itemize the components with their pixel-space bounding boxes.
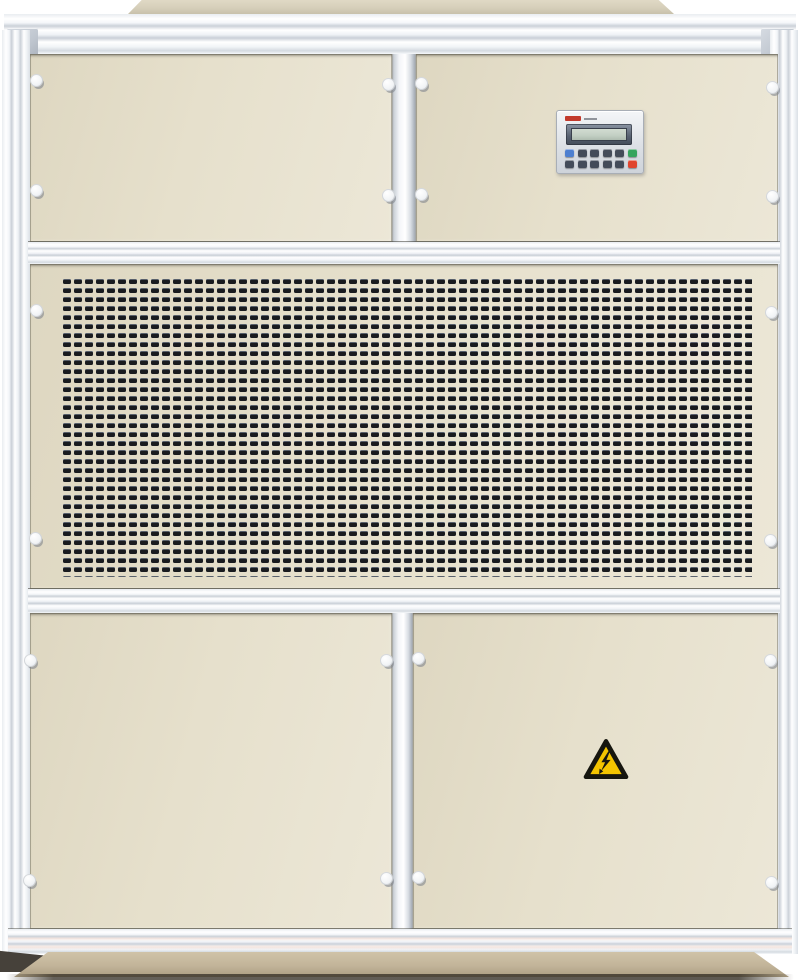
keypad-button-dark [590,160,599,168]
electrical-hazard-icon [583,736,629,782]
panel-latch [766,81,779,94]
access-door-bottom-left [30,613,392,929]
panel-latch [765,876,778,889]
keypad-button-dark [615,160,624,168]
panel-latch [415,188,428,201]
keypad-button-dark [615,149,624,157]
ventilation-panel [30,264,778,589]
lcd-display [566,124,632,145]
panel-latch [412,871,425,884]
ventilation-grille [62,277,752,577]
keypad-button-red [628,160,637,168]
frame-top-rail [4,14,796,54]
frame-mullion-bottom [392,613,413,929]
panel-latch [24,654,37,667]
controller-keypad [556,110,644,174]
keypad-button-blue [565,149,574,157]
keypad-button-dark [578,160,587,168]
cabinet-roof [128,0,674,14]
panel-latch [380,654,393,667]
brand-logo [565,116,581,121]
frame-mullion-top [392,54,416,242]
keypad-button-dark [578,149,587,157]
panel-latch [765,306,778,319]
floor-shadow [6,974,794,980]
keypad-button-dark [565,160,574,168]
panel-latch [382,78,395,91]
frame-base-rail [8,929,792,954]
keypad-button-dark [590,149,599,157]
access-door-bottom-right [413,613,778,929]
panel-latch [764,654,777,667]
keypad-button-row-2 [565,160,637,168]
equipment-photo [0,0,800,980]
keypad-button-green [628,149,637,157]
brand-subtext [584,118,597,120]
panel-latch [30,184,43,197]
access-panel-top-left [30,54,392,242]
panel-latch [30,304,43,317]
keypad-button-dark [603,160,612,168]
panel-latch [764,534,777,547]
frame-mid-rail [28,242,780,264]
frame-lower-rail [28,589,780,613]
panel-latch [380,872,393,885]
panel-latch [30,74,43,87]
panel-latch [766,190,779,203]
panel-latch [412,652,425,665]
panel-latch [382,189,395,202]
panel-latch [23,874,36,887]
panel-latch [29,532,42,545]
keypad-button-row-1 [565,149,637,157]
panel-latch [415,77,428,90]
lcd-screen [571,128,627,141]
frame-left-rail [2,30,30,954]
keypad-button-dark [603,149,612,157]
